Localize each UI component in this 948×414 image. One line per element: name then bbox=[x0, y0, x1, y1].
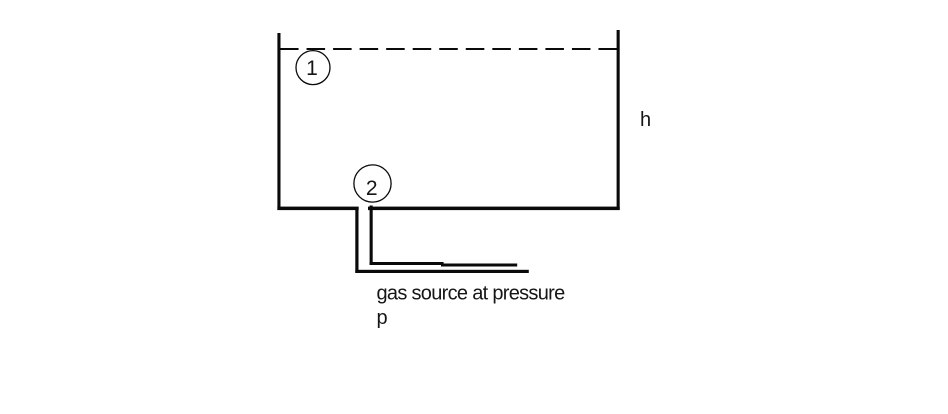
svg-text:gas source at pressure: gas source at pressure bbox=[377, 283, 566, 305]
svg-text:h: h bbox=[640, 109, 651, 131]
svg-text:p: p bbox=[377, 307, 388, 329]
svg-text:2: 2 bbox=[366, 177, 378, 200]
svg-text:1: 1 bbox=[306, 57, 318, 80]
